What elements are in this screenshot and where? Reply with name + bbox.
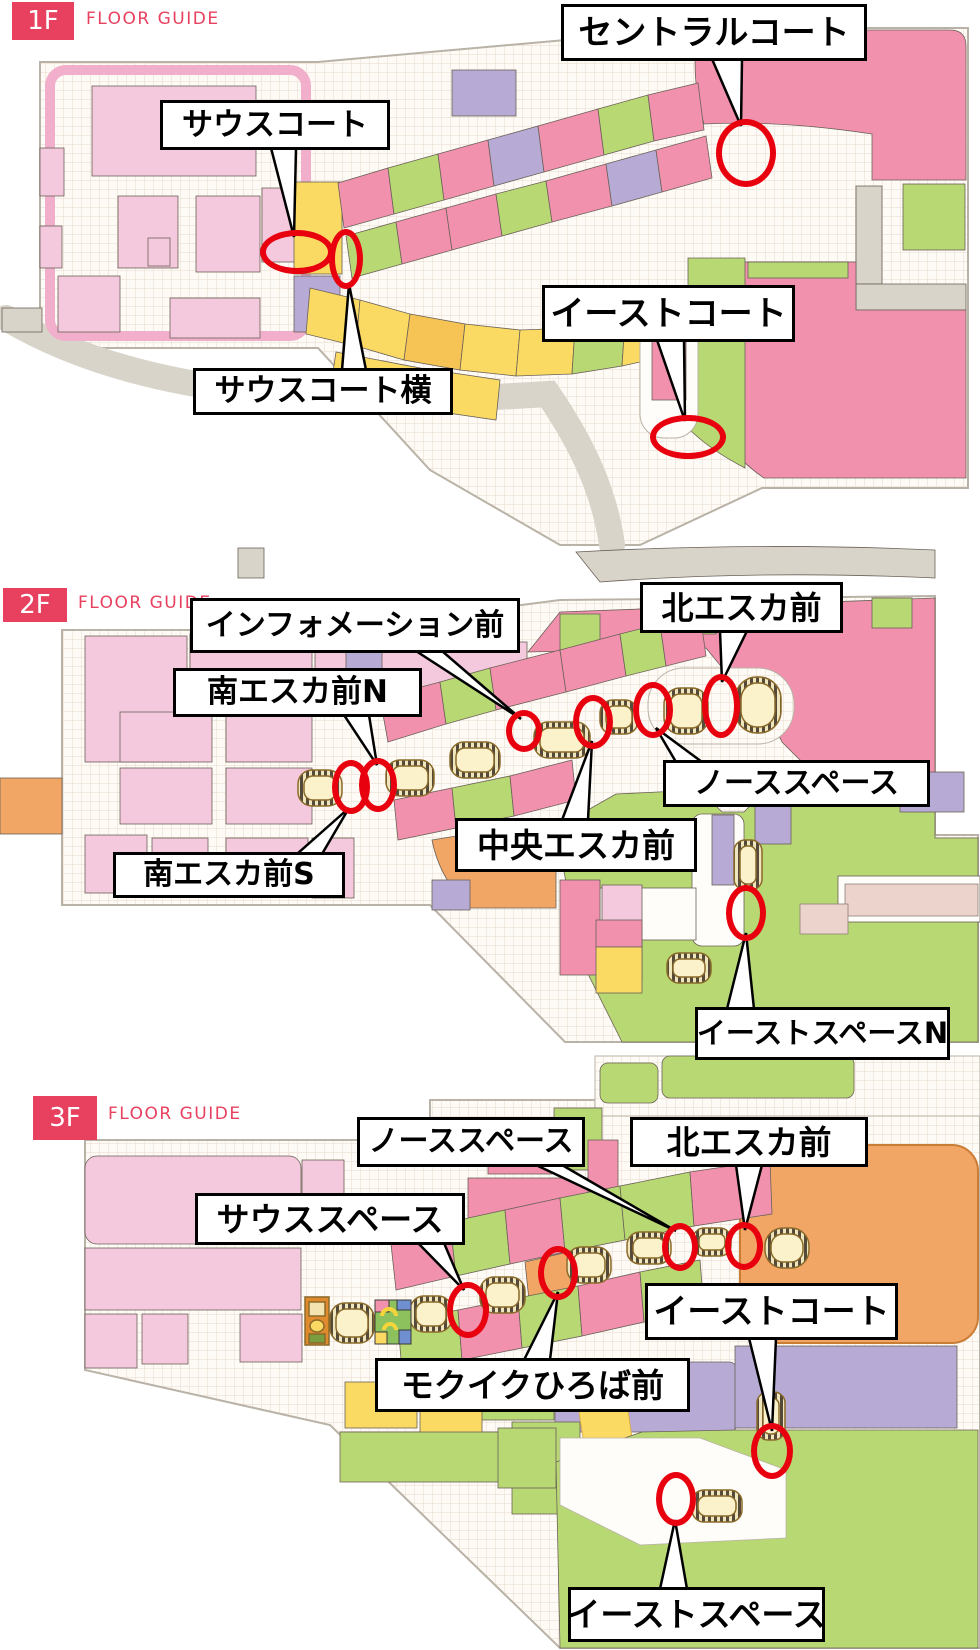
marker-3f-north-esca-front bbox=[725, 1222, 763, 1270]
marker-1f-central-court bbox=[716, 119, 776, 187]
marker-3f-south-space bbox=[447, 1282, 489, 1338]
callout-2f-south-esca-front-n: 南エスカ前N bbox=[173, 668, 422, 717]
marker-3f-east-court bbox=[751, 1423, 793, 1479]
floor-badge-1f: 1F bbox=[12, 2, 74, 40]
play-area-icon bbox=[375, 1300, 411, 1344]
marker-2f-south-esca-front-n bbox=[359, 758, 397, 812]
callout-3f-east-space: イーストスペース bbox=[568, 1587, 825, 1642]
callout-2f-north-esca-front: 北エスカ前 bbox=[640, 582, 843, 633]
callout-3f-south-space: サウススペース bbox=[195, 1193, 465, 1245]
marker-1f-east-court bbox=[650, 415, 726, 459]
marker-2f-information-front bbox=[506, 710, 542, 752]
callout-1f-east-court: イーストコート bbox=[542, 285, 795, 342]
marker-2f-north-space bbox=[633, 682, 673, 738]
marker-1f-south-court-side bbox=[329, 229, 363, 289]
callout-3f-mokuiku-hiroba-front: モクイクひろば前 bbox=[375, 1358, 690, 1412]
floor-guide-label-3f: FLOOR GUIDE bbox=[108, 1104, 242, 1124]
marker-2f-central-esca-front bbox=[573, 695, 613, 749]
callout-1f-south-court-side: サウスコート横 bbox=[193, 368, 453, 415]
callout-2f-south-esca-front-s: 南エスカ前S bbox=[113, 852, 345, 898]
callout-2f-east-space-n: イーストスペースN bbox=[695, 1007, 950, 1060]
floor-badge-2f: 2F bbox=[3, 588, 67, 622]
marker-3f-east-space bbox=[656, 1472, 696, 1526]
callout-1f-central-court: セントラルコート bbox=[561, 4, 867, 61]
callout-3f-north-space: ノーススペース bbox=[357, 1117, 585, 1167]
floor-guide-label-1f: FLOOR GUIDE bbox=[86, 9, 220, 29]
marker-3f-north-space bbox=[662, 1223, 698, 1271]
callout-3f-east-court: イーストコート bbox=[645, 1283, 898, 1340]
callout-3f-north-esca-front: 北エスカ前 bbox=[630, 1117, 868, 1167]
floor-badge-3f: 3F bbox=[33, 1096, 97, 1140]
marker-3f-mokuiku-hiroba-front bbox=[538, 1246, 578, 1300]
floor-guide-page: 1F FLOOR GUIDE 2F FLOOR GUIDE 3F FLOOR G… bbox=[0, 0, 980, 1650]
marker-2f-east-space-n bbox=[726, 885, 766, 941]
marker-2f-north-esca-front bbox=[702, 674, 740, 738]
map-1f bbox=[2, 28, 968, 545]
callout-2f-information-front: インフォメーション前 bbox=[190, 598, 520, 653]
callout-2f-north-space: ノーススペース bbox=[663, 760, 930, 807]
callout-2f-central-esca-front: 中央エスカ前 bbox=[455, 818, 697, 872]
marker-1f-south-court bbox=[260, 230, 334, 274]
callout-1f-south-court: サウスコート bbox=[160, 100, 390, 150]
